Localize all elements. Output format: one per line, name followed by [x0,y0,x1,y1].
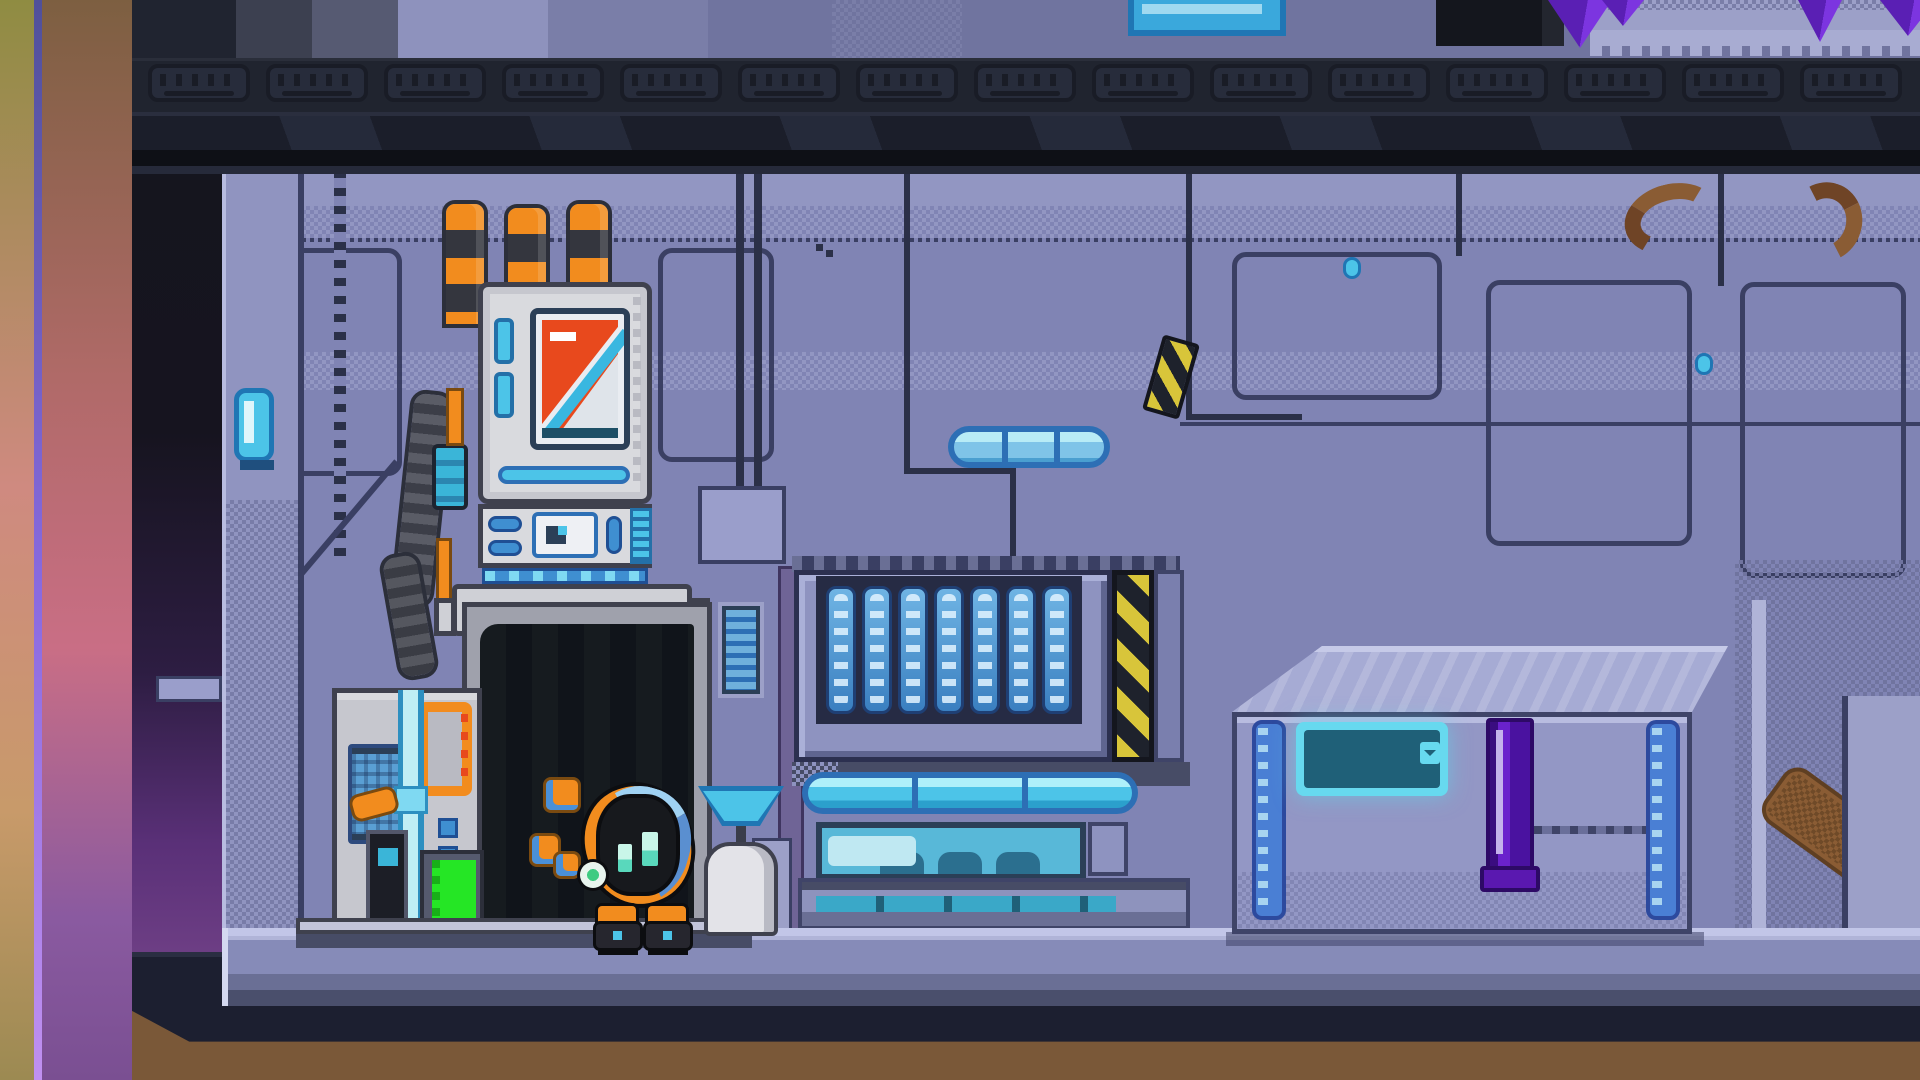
vent-slat-icon [826,586,856,714]
ceiling-vent-icon [1328,64,1430,102]
vent-slat-icon [934,586,964,714]
post-body [704,842,778,936]
blue-button[interactable] [488,516,522,532]
foot-cap [598,906,636,926]
debris-bit-icon [556,854,578,876]
robot-foot-right [646,906,690,954]
orange-pipe [446,388,464,446]
platform-dither [1596,0,1919,10]
wall-conduit [1010,468,1016,564]
cyan-light-bar [802,772,1138,814]
foot-dot [613,931,622,940]
foot-cap [648,906,686,926]
robot-foot-left [596,906,640,954]
wall-panel-outline [1740,282,1906,578]
upper-blue-crate [1128,0,1286,36]
robot-head [600,798,676,892]
robot-eye-right [642,832,658,866]
left-gradient-strip [42,0,132,1080]
label-chip-icon [1420,742,1440,764]
crate-shadow [1226,932,1704,946]
debris-bit-icon [546,780,578,810]
dish-icon [703,791,779,821]
ceiling-vent-icon [1682,64,1784,102]
pillar-handle[interactable] [234,388,274,462]
console-base [798,878,1190,930]
ceiling-vent-icon [502,64,604,102]
gear-platform [1590,0,1920,56]
vent-slat-icon [1006,586,1036,714]
recess-hump-icon [996,852,1040,874]
pipe-joint [394,786,428,814]
wall-vent-grille [722,606,760,694]
machine-light-bar [498,466,630,484]
crate-hinge-strip [1646,720,1680,920]
platform-teeth [1590,46,1920,56]
wall-conduit [1456,170,1462,256]
orange-pipe [436,538,452,604]
vent-console[interactable] [792,556,1190,930]
recess-light-patch [828,836,916,866]
ceiling-vent-icon [1446,64,1548,102]
crate-top-face [1218,640,1730,714]
ceiling-vent-modules [148,64,1920,106]
robot-character[interactable] [584,788,700,958]
upper-wall-panel [548,0,708,58]
base-glow-strip [816,896,1116,912]
eye-screen [532,512,598,558]
wall-pipe [754,170,762,504]
ceiling-beam [132,112,1920,170]
robot-eye-left [618,844,632,872]
crate-seam [1534,826,1646,834]
wall-block [698,486,786,564]
crate-hinge-strip [1252,720,1286,920]
satellite-dish-post[interactable] [694,786,790,936]
wall-conduit [904,170,910,472]
ceiling-vent-icon [1092,64,1194,102]
wall-conduit [1186,414,1302,420]
vent-slat-icon [862,586,892,714]
console-lower-recess [816,822,1086,880]
warning-screen[interactable] [530,308,630,450]
orange-handle-frame[interactable] [418,702,472,796]
handle-highlight [244,401,254,443]
ceiling-vent-icon [266,64,368,102]
left-shelf [156,676,222,702]
ceiling-vent-icon [738,64,840,102]
wall-pipe [736,170,744,504]
ceiling-vent-icon [974,64,1076,102]
hazard-stripe-column [1112,570,1154,762]
beam-slashes [132,116,1920,150]
purple-latch-handle[interactable] [1486,718,1534,870]
wall-panel-outline [1232,252,1442,400]
eye-pupil [558,526,567,535]
game-scene [0,0,1920,1080]
upper-wall-light-panel [398,0,548,58]
blue-indicator [438,818,458,838]
beam-dark-band [132,150,1920,166]
warning-sign-base [542,428,618,438]
foot-dot [663,931,672,940]
upper-wall-dither [832,0,962,58]
left-pillar [222,170,304,940]
platform-lower [1590,30,1920,46]
upper-wall-panel [312,0,398,58]
wall-capsule-lamp [948,426,1110,468]
console-side-column [1088,822,1128,876]
latch-base [1480,866,1540,892]
upper-dark-doorway [1436,0,1564,46]
foot-sole [648,948,688,955]
green-bar-ticks [432,860,440,926]
left-gradient-strip [0,0,34,1080]
upper-room [132,0,1920,58]
wall-conduit [904,468,1016,474]
cyan-light-icon [494,318,514,364]
cyan-bolt-icon [1346,260,1358,276]
recess-hump-icon [938,852,982,874]
debris-bit-icon [532,836,558,864]
wall-post [1752,600,1766,930]
cyan-clamp [432,444,468,510]
ceiling-vent-icon [856,64,958,102]
warning-sign-dash [550,332,576,341]
pillar-handle-shadow [240,460,274,470]
crate-shine [1142,4,1262,14]
wall-mark [816,244,823,251]
ceiling-vent-icon [384,64,486,102]
console-slat-recess [816,576,1082,724]
cyan-bolt-icon [1698,356,1710,372]
wall-panel-outline [1486,280,1692,546]
ceiling-vent-icon [1800,64,1902,102]
wall-conduit [1718,170,1724,286]
pillar-dither [226,500,298,940]
cyan-slats-icon [630,508,652,564]
base-bottom-band [802,912,1186,926]
vent-slat-icon [1042,586,1072,714]
machine-blue-strip [482,568,648,584]
beam-lower-band [132,166,1920,174]
upper-wall-dark-panel [132,0,236,58]
ceiling-vent-icon [148,64,250,102]
crate-glowing-label [1296,722,1448,796]
blue-switch[interactable] [606,516,622,554]
wall-rivet-seam [334,170,346,562]
console-side-column [1154,570,1184,762]
left-purple-line [34,0,42,1080]
ceiling-vent-icon [620,64,722,102]
ceiling-vent-icon [1564,64,1666,102]
cargo-crate[interactable] [1218,640,1730,950]
machine-shoulder-wedge [434,598,456,636]
blue-button[interactable] [488,540,522,556]
ceiling-vent-icon [1210,64,1312,102]
wall-mark [826,250,833,257]
robot-badge-icon [580,862,606,888]
crate-front-dither [1238,872,1686,928]
foot-sole [598,948,638,955]
vent-slat-icon [970,586,1000,714]
upper-wall-panel [236,0,312,58]
cyan-light-icon [494,372,514,418]
conduit-window [378,848,398,866]
vent-slat-icon [898,586,928,714]
